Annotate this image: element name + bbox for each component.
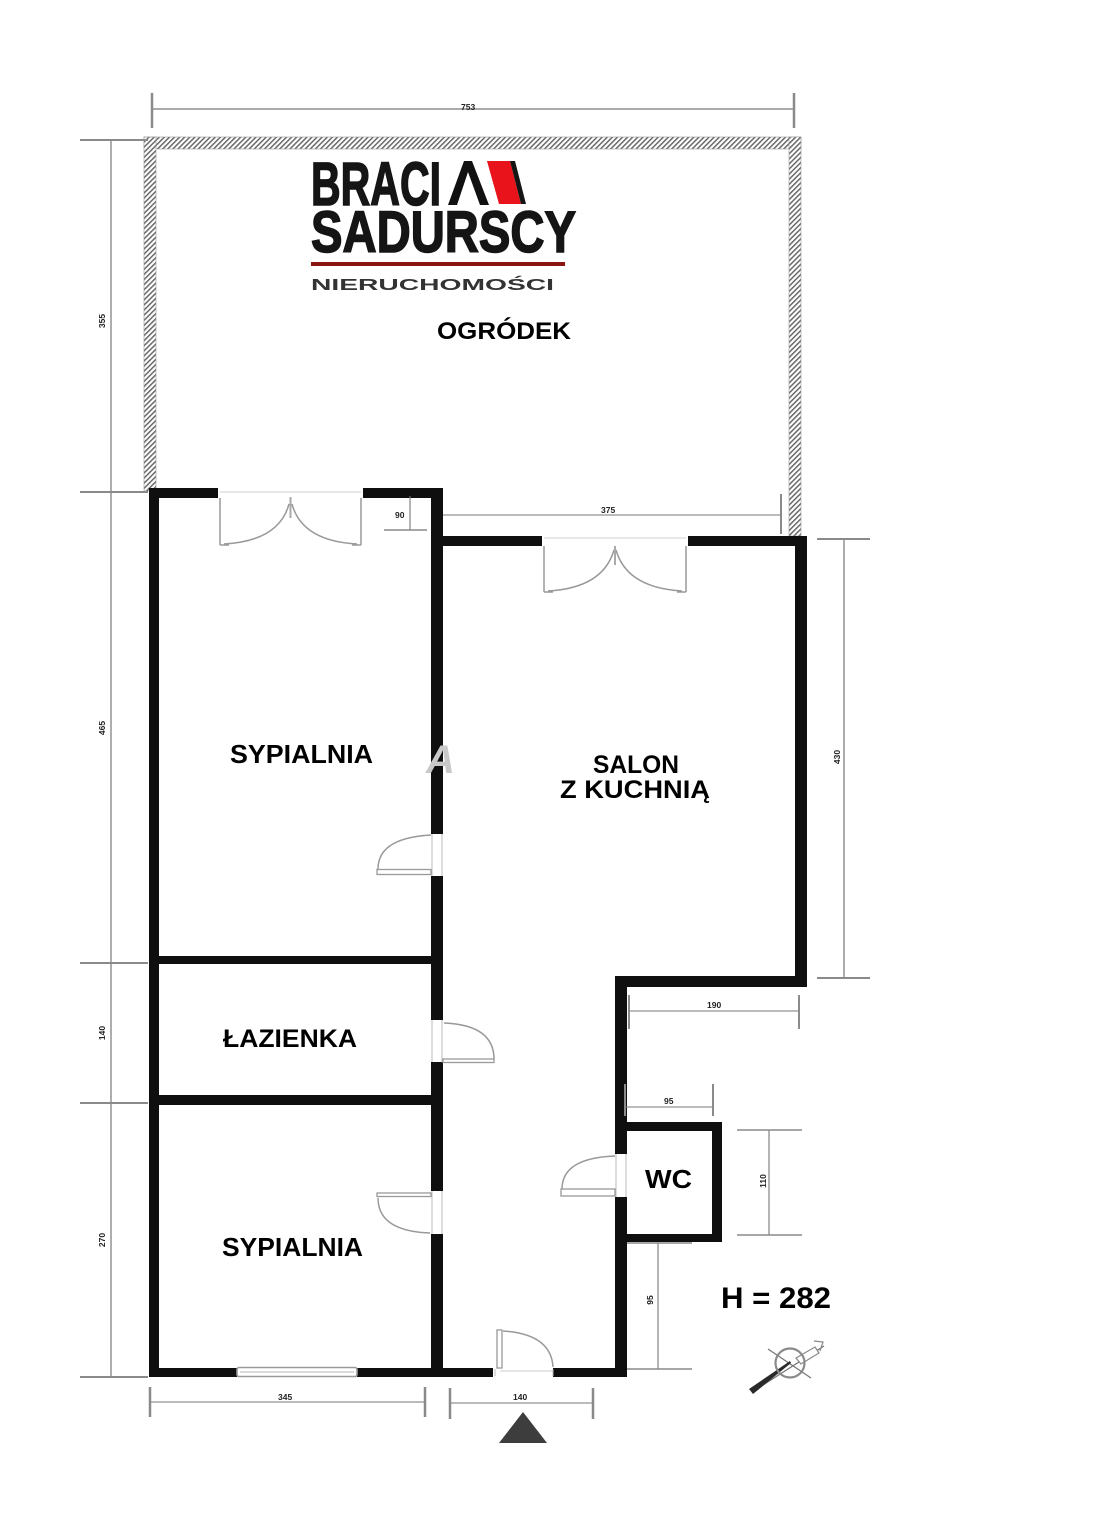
svg-text:SADURSCY: SADURSCY: [311, 200, 576, 265]
svg-text:A: A: [425, 738, 455, 782]
svg-text:OGRÓDEK: OGRÓDEK: [437, 317, 572, 345]
svg-text:355: 355: [97, 314, 107, 328]
svg-text:SYPIALNIA: SYPIALNIA: [222, 1232, 363, 1262]
svg-text:140: 140: [513, 1392, 527, 1402]
svg-text:110: 110: [758, 1174, 768, 1188]
svg-text:140: 140: [97, 1026, 107, 1040]
svg-text:190: 190: [707, 1000, 721, 1010]
svg-text:95: 95: [645, 1295, 655, 1305]
svg-text:WC: WC: [645, 1164, 692, 1194]
svg-text:SYPIALNIA: SYPIALNIA: [230, 739, 373, 769]
svg-text:SALON: SALON: [593, 751, 679, 779]
svg-text:430: 430: [832, 750, 842, 764]
svg-text:753: 753: [461, 102, 475, 112]
svg-text:Z KUCHNIĄ: Z KUCHNIĄ: [560, 776, 710, 804]
svg-text:95: 95: [664, 1096, 674, 1106]
svg-text:345: 345: [278, 1392, 292, 1402]
svg-text:270: 270: [97, 1233, 107, 1247]
svg-text:H = 282: H = 282: [721, 1282, 831, 1315]
svg-text:NIERUCHOMOŚCI: NIERUCHOMOŚCI: [311, 275, 554, 294]
svg-text:465: 465: [97, 721, 107, 735]
svg-text:375: 375: [601, 505, 615, 515]
svg-text:ŁAZIENKA: ŁAZIENKA: [223, 1025, 357, 1053]
svg-text:90: 90: [395, 510, 405, 520]
